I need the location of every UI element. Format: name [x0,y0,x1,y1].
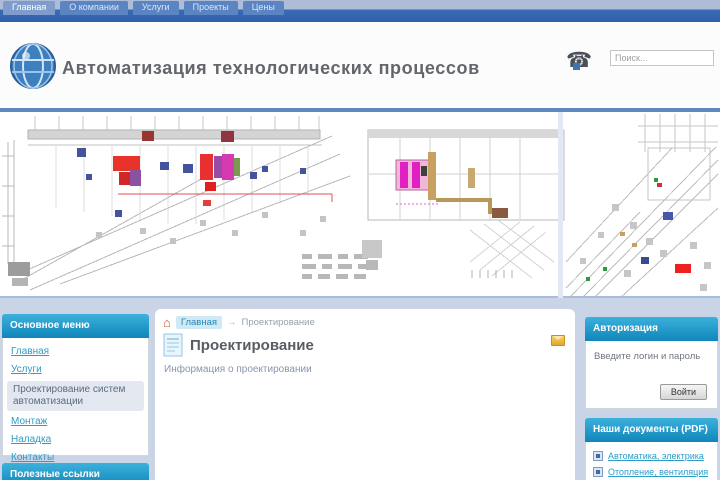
site-title: Автоматизация технологических процессов [62,58,480,79]
breadcrumb-separator: → [227,317,237,328]
doc-link-heating[interactable]: Отопление, вентиляция [608,467,708,477]
docs-module-title: Наши документы (PDF) [585,418,718,442]
breadcrumb-home-link[interactable]: Главная [176,316,222,329]
login-module: Введите логин и пароль Войти [585,341,718,409]
banner-technical-drawing [0,112,720,298]
docs-module: Автоматика, электрика Отопление, вентиля… [585,442,718,480]
doc-bullet-icon [593,451,603,461]
document-icon [163,333,183,357]
sidebar-item-home[interactable]: Главная [3,343,148,361]
doc-list-item: Автоматика, электрика [586,448,717,464]
nav-tab-home[interactable]: Главная [3,1,55,15]
sidebar-links-module-title: Полезные ссылки [2,463,149,480]
sidebar-menu: Главная Услуги Проектирование систем авт… [2,338,149,456]
login-hint-text: Введите логин и пароль [586,341,717,362]
main-content-card: ⌂ Главная → Проектирование Проектировани… [155,309,575,480]
page-title: Проектирование [190,333,314,354]
login-button[interactable]: Войти [660,384,707,400]
doc-link-automation[interactable]: Автоматика, электрика [608,451,704,461]
top-navigation-bar: Главная О компании Услуги Проекты Цены [0,0,720,22]
doc-bullet-icon [593,467,603,477]
sidebar-item-commissioning[interactable]: Наладка [3,431,148,449]
nav-tab-prices[interactable]: Цены [243,1,284,15]
nav-tab-projects[interactable]: Проекты [184,1,238,15]
breadcrumb-current: Проектирование [242,317,315,328]
nav-tab-about[interactable]: О компании [60,1,128,15]
sidebar-item-design-active[interactable]: Проектирование систем автоматизации [7,381,144,411]
logo-globe-icon [9,42,57,90]
site-header: Автоматизация технологических процессов … [0,22,720,112]
article-subtitle: Информация о проектировании [164,364,312,375]
nav-tab-services[interactable]: Услуги [133,1,179,15]
search-input[interactable] [610,50,714,66]
login-module-title: Авторизация [585,317,718,341]
doc-list-item: Отопление, вентиляция [586,464,717,480]
telephone-icon: ☎ [566,50,592,72]
breadcrumb: ⌂ Главная → Проектирование [163,316,315,329]
home-icon: ⌂ [163,317,171,328]
sidebar-item-services[interactable]: Услуги [3,361,148,379]
email-icon[interactable] [551,335,565,346]
sidebar-item-installation[interactable]: Монтаж [3,413,148,431]
sidebar-menu-title: Основное меню [2,314,149,338]
